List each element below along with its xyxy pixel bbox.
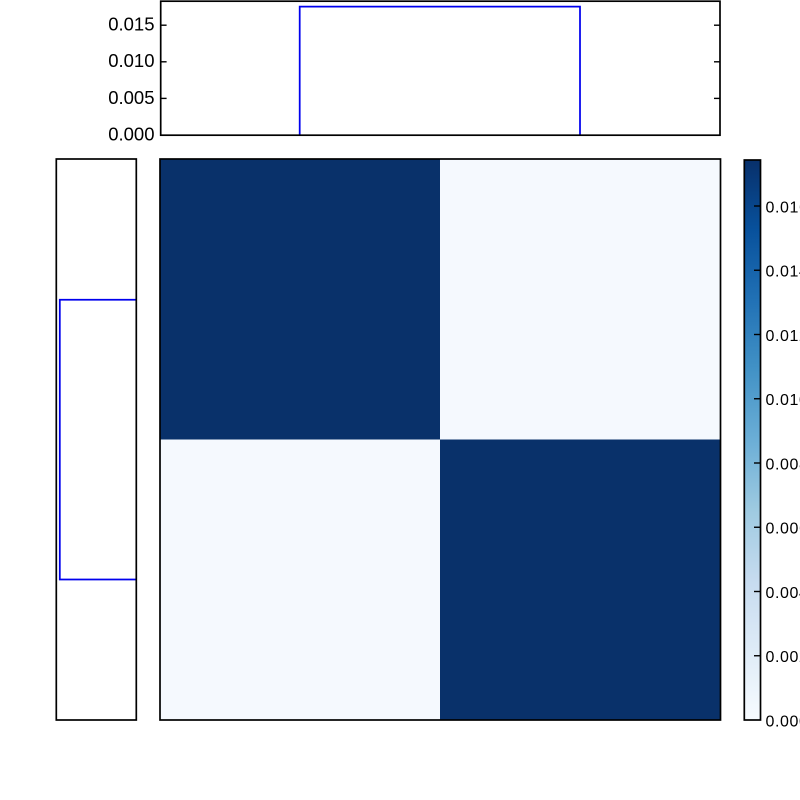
svg-text:0.000: 0.000 bbox=[108, 123, 154, 144]
svg-text:0.004: 0.004 bbox=[766, 585, 800, 602]
svg-text:0.015: 0.015 bbox=[108, 14, 154, 35]
svg-text:0.006: 0.006 bbox=[766, 521, 800, 538]
svg-text:0.010: 0.010 bbox=[108, 50, 154, 71]
svg-text:0.012: 0.012 bbox=[766, 328, 800, 345]
svg-text:0.000: 0.000 bbox=[766, 713, 800, 730]
svg-text:0.002: 0.002 bbox=[766, 649, 800, 666]
svg-text:0.005: 0.005 bbox=[108, 87, 154, 108]
svg-text:0.014: 0.014 bbox=[766, 264, 800, 281]
svg-text:0.016: 0.016 bbox=[766, 199, 800, 216]
svg-text:0.010: 0.010 bbox=[766, 392, 800, 409]
svg-text:0.008: 0.008 bbox=[766, 456, 800, 473]
